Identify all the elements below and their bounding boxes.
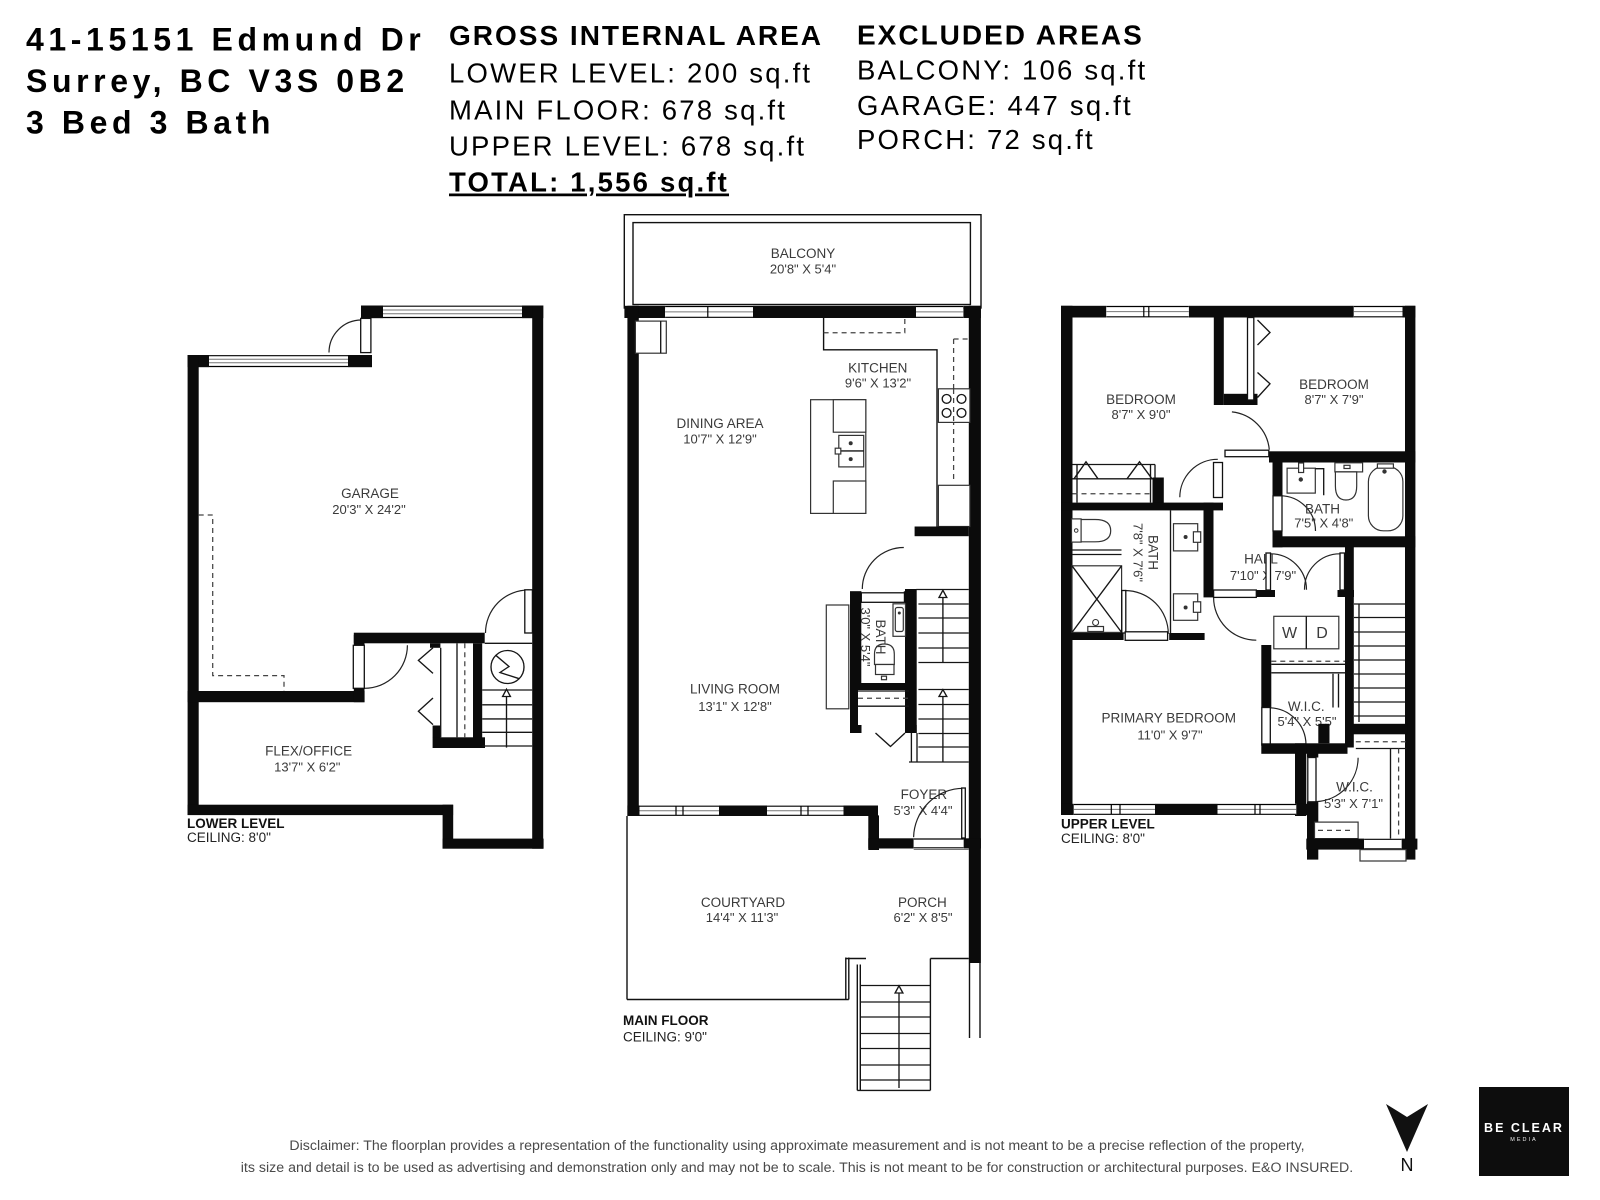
svg-text:LIVING ROOM: LIVING ROOM <box>690 682 780 697</box>
svg-text:MAIN FLOOR: 678 sq.ft: MAIN FLOOR: 678 sq.ft <box>449 95 787 126</box>
svg-text:5'3" X 7'1": 5'3" X 7'1" <box>1324 796 1383 811</box>
svg-text:3'0" X 5'4": 3'0" X 5'4" <box>858 607 873 666</box>
svg-text:D: D <box>1316 625 1328 642</box>
svg-text:BATH: BATH <box>1305 502 1340 517</box>
svg-text:CEILING: 8'0": CEILING: 8'0" <box>1061 831 1145 846</box>
svg-text:BALCONY: BALCONY <box>771 246 836 261</box>
svg-text:KITCHEN: KITCHEN <box>848 361 907 376</box>
svg-text:UPPER LEVEL: 678 sq.ft: UPPER LEVEL: 678 sq.ft <box>449 130 806 161</box>
svg-text:W.I.C.: W.I.C. <box>1336 779 1373 794</box>
svg-text:Surrey, BC V3S 0B2: Surrey, BC V3S 0B2 <box>26 63 409 99</box>
svg-text:LOWER LEVEL: 200 sq.ft: LOWER LEVEL: 200 sq.ft <box>449 57 812 88</box>
svg-text:3 Bed 3 Bath: 3 Bed 3 Bath <box>26 105 275 141</box>
svg-text:14'4" X 11'3": 14'4" X 11'3" <box>706 910 779 925</box>
svg-text:8'7" X 7'9": 8'7" X 7'9" <box>1304 392 1363 407</box>
svg-text:LOWER LEVEL: LOWER LEVEL <box>187 816 285 831</box>
svg-text:7'5" X 4'8": 7'5" X 4'8" <box>1294 516 1353 531</box>
svg-text:W.I.C.: W.I.C. <box>1288 699 1325 714</box>
svg-text:7'8" X 7'6": 7'8" X 7'6" <box>1131 523 1146 582</box>
svg-text:PORCH: 72 sq.ft: PORCH: 72 sq.ft <box>857 124 1095 155</box>
svg-text:its size and detail is to be u: its size and detail is to be used as adv… <box>241 1160 1353 1176</box>
svg-text:UPPER LEVEL: UPPER LEVEL <box>1061 817 1155 832</box>
svg-text:BE CLEAR: BE CLEAR <box>1484 1121 1564 1135</box>
svg-text:20'3" X 24'2": 20'3" X 24'2" <box>332 502 406 517</box>
svg-text:Disclaimer: The floorplan prov: Disclaimer: The floorplan provides a rep… <box>289 1138 1304 1154</box>
svg-text:W: W <box>1282 625 1298 642</box>
svg-text:BATH: BATH <box>1146 535 1161 570</box>
svg-text:8'7" X 9'0": 8'7" X 9'0" <box>1111 407 1170 422</box>
svg-text:10'7" X 12'9": 10'7" X 12'9" <box>683 432 757 447</box>
svg-text:N: N <box>1401 1155 1414 1175</box>
svg-text:BEDROOM: BEDROOM <box>1299 377 1369 392</box>
svg-text:BATH: BATH <box>873 619 888 654</box>
svg-text:7'10" X 7'9": 7'10" X 7'9" <box>1230 568 1297 583</box>
svg-text:COURTYARD: COURTYARD <box>701 895 786 910</box>
svg-text:11'0" X 9'7": 11'0" X 9'7" <box>1137 728 1203 743</box>
svg-text:41-15151 Edmund Dr: 41-15151 Edmund Dr <box>26 21 425 57</box>
svg-text:BEDROOM: BEDROOM <box>1106 392 1176 407</box>
svg-text:CEILING: 9'0": CEILING: 9'0" <box>623 1030 707 1045</box>
svg-text:CEILING: 8'0": CEILING: 8'0" <box>187 830 271 845</box>
svg-text:GROSS INTERNAL AREA: GROSS INTERNAL AREA <box>449 20 823 51</box>
svg-text:EXCLUDED AREAS: EXCLUDED AREAS <box>857 20 1144 51</box>
svg-text:TOTAL: 1,556 sq.ft: TOTAL: 1,556 sq.ft <box>449 167 729 198</box>
svg-text:9'6" X 13'2": 9'6" X 13'2" <box>845 376 912 391</box>
svg-text:PRIMARY BEDROOM: PRIMARY BEDROOM <box>1102 711 1237 726</box>
svg-text:DINING AREA: DINING AREA <box>676 416 763 431</box>
svg-text:MEDIA: MEDIA <box>1510 1137 1537 1143</box>
svg-text:MAIN FLOOR: MAIN FLOOR <box>623 1013 709 1028</box>
svg-text:GARAGE: 447 sq.ft: GARAGE: 447 sq.ft <box>857 90 1133 121</box>
svg-text:5'3" X 4'4": 5'3" X 4'4" <box>893 803 952 818</box>
svg-text:20'8" X 5'4": 20'8" X 5'4" <box>770 262 837 277</box>
svg-text:13'1" X 12'8": 13'1" X 12'8" <box>698 699 772 714</box>
svg-text:GARAGE: GARAGE <box>341 486 399 501</box>
svg-text:FLEX/OFFICE: FLEX/OFFICE <box>265 744 352 759</box>
svg-text:6'2" X 8'5": 6'2" X 8'5" <box>893 910 952 925</box>
svg-text:PORCH: PORCH <box>898 895 947 910</box>
svg-text:13'7" X 6'2": 13'7" X 6'2" <box>274 760 341 775</box>
svg-text:BALCONY: 106 sq.ft: BALCONY: 106 sq.ft <box>857 55 1147 86</box>
